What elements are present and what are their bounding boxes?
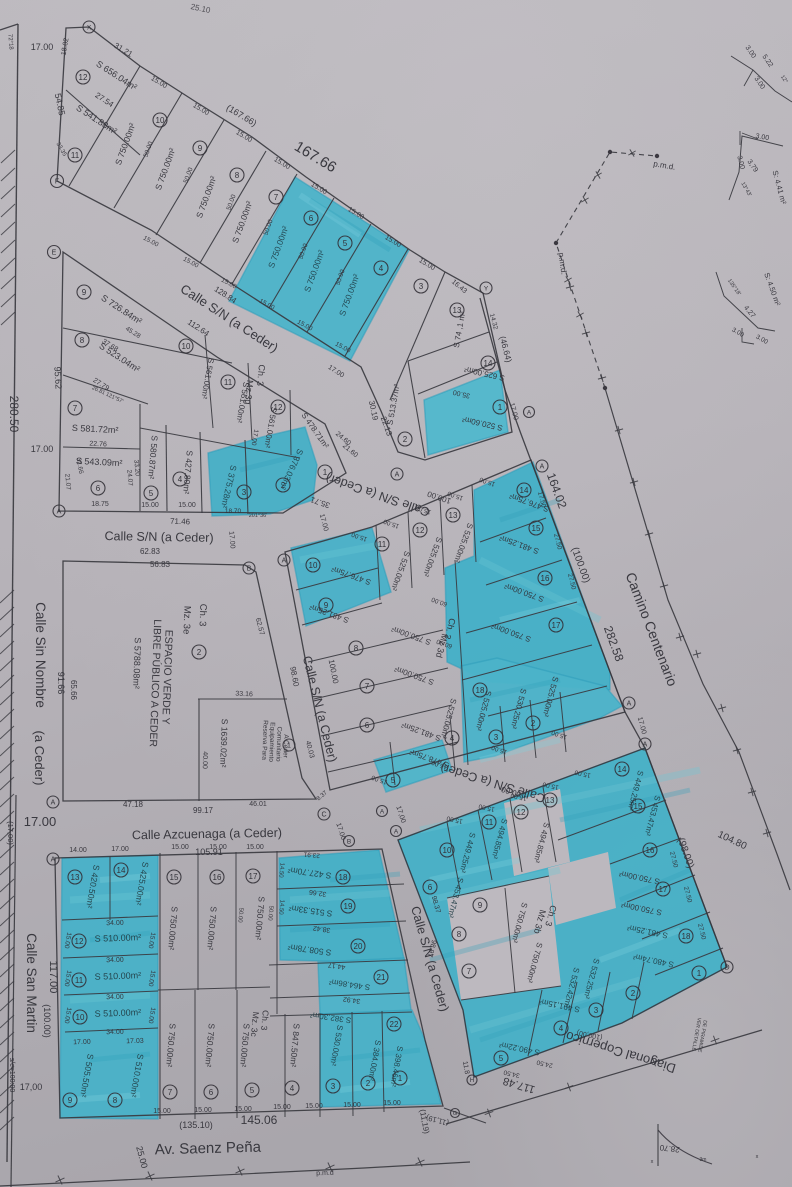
svg-text:16: 16: [213, 873, 222, 882]
svg-text:6: 6: [209, 1088, 214, 1097]
svg-text:s/c=100.00: s/c=100.00: [8, 1058, 15, 1093]
svg-text:8: 8: [80, 336, 85, 345]
svg-text:21: 21: [377, 973, 386, 982]
svg-text:16: 16: [646, 846, 655, 855]
svg-text:Calle S/N (a Ceder): Calle S/N (a Ceder): [104, 529, 213, 545]
svg-text:11: 11: [224, 378, 233, 387]
svg-text:46.01: 46.01: [249, 801, 267, 808]
svg-text:14: 14: [117, 866, 126, 875]
svg-text:5: 5: [250, 1086, 255, 1095]
svg-text:1: 1: [498, 403, 503, 412]
svg-text:10: 10: [182, 342, 191, 351]
svg-text:4: 4: [178, 475, 183, 484]
svg-text:2: 2: [197, 648, 202, 657]
svg-text:17.00: 17.00: [73, 1039, 91, 1047]
svg-text:C: C: [321, 812, 326, 819]
svg-text:12: 12: [79, 73, 88, 82]
svg-text:5: 5: [149, 489, 154, 498]
svg-text:15.00: 15.00: [383, 1100, 401, 1107]
svg-text:12: 12: [274, 403, 283, 412]
svg-text:x: x: [651, 1159, 654, 1165]
svg-text:2: 2: [631, 989, 636, 998]
svg-text:A: A: [540, 464, 545, 471]
svg-text:Y: Y: [484, 285, 489, 292]
svg-text:10: 10: [309, 561, 318, 570]
svg-text:15.00: 15.00: [343, 1102, 361, 1109]
svg-text:Calle San Martin: Calle San Martin: [24, 933, 39, 1033]
svg-text:9: 9: [82, 288, 87, 297]
svg-text:24.07: 24.07: [125, 469, 133, 486]
svg-text:17.00: 17.00: [31, 42, 54, 52]
svg-text:10: 10: [443, 846, 452, 855]
svg-text:23.91: 23.91: [303, 850, 320, 858]
svg-text:p.m.d: p.m.d: [316, 1170, 334, 1178]
svg-text:A: A: [51, 800, 56, 807]
svg-text:7: 7: [274, 193, 279, 202]
svg-text:15.00: 15.00: [178, 502, 196, 509]
svg-text:17,00: 17,00: [20, 1082, 43, 1092]
svg-text:A: A: [627, 701, 632, 708]
svg-text:62.83: 62.83: [140, 547, 161, 556]
svg-text:3: 3: [419, 282, 424, 291]
svg-text:201°36': 201°36': [249, 513, 268, 519]
svg-text:14: 14: [484, 359, 493, 368]
svg-text:7: 7: [365, 682, 370, 691]
svg-text:3: 3: [494, 733, 499, 742]
svg-text:17.00: 17.00: [24, 814, 57, 829]
svg-text:Calle Sin Nombre: Calle Sin Nombre: [33, 602, 48, 708]
svg-text:12: 12: [517, 808, 526, 817]
svg-text:40.00: 40.00: [201, 751, 209, 769]
svg-text:4: 4: [290, 1084, 295, 1093]
svg-text:34.00: 34.00: [106, 994, 124, 1002]
svg-text:34.00: 34.00: [106, 920, 124, 928]
svg-text:71.46: 71.46: [170, 517, 191, 527]
svg-text:Mz. 3e: Mz. 3e: [181, 606, 193, 635]
svg-text:65.66: 65.66: [69, 680, 78, 701]
svg-text:9: 9: [198, 144, 203, 153]
svg-text:Reserva Para: Reserva Para: [260, 720, 268, 760]
svg-text:47.18: 47.18: [123, 800, 144, 809]
svg-text:14: 14: [520, 486, 529, 495]
svg-text:13: 13: [449, 511, 458, 520]
svg-text:13: 13: [71, 873, 80, 882]
svg-text:6: 6: [309, 214, 314, 223]
svg-text:S 5788.08m²: S 5788.08m²: [131, 637, 143, 689]
svg-text:15.00: 15.00: [209, 844, 227, 851]
svg-text:Comunitario: Comunitario: [274, 726, 282, 762]
svg-text:9: 9: [478, 901, 483, 910]
svg-text:8: 8: [354, 644, 359, 653]
svg-text:(135.10): (135.10): [179, 1120, 213, 1130]
svg-text:3: 3: [594, 1006, 599, 1015]
svg-text:5: 5: [499, 1054, 504, 1063]
svg-text:Mz 3g: Mz 3g: [243, 380, 255, 405]
svg-text:18: 18: [682, 932, 691, 941]
svg-text:4: 4: [559, 1024, 564, 1033]
svg-text:6: 6: [96, 484, 101, 493]
svg-text:S 510.00m²: S 510.00m²: [94, 1007, 141, 1019]
svg-text:17: 17: [249, 872, 258, 881]
svg-text:3: 3: [242, 488, 247, 497]
svg-text:34.00: 34.00: [106, 957, 124, 965]
svg-text:15.00: 15.00: [234, 1106, 252, 1113]
svg-text:15: 15: [532, 524, 541, 533]
svg-text:(17,00): (17,00): [6, 821, 15, 845]
svg-text:8: 8: [113, 1096, 118, 1105]
svg-text:10: 10: [156, 116, 165, 125]
svg-text:15: 15: [170, 873, 179, 882]
svg-text:17: 17: [552, 621, 561, 630]
svg-text:18.70: 18.70: [225, 508, 242, 515]
svg-text:20: 20: [354, 942, 363, 951]
svg-text:S 510.00m²: S 510.00m²: [94, 932, 141, 944]
svg-text:Av. Saenz Peña: Av. Saenz Peña: [155, 1139, 262, 1159]
svg-text:18: 18: [339, 873, 348, 882]
svg-text:8: 8: [235, 171, 240, 180]
svg-text:A: A: [282, 558, 287, 565]
svg-text:14.00: 14.00: [69, 847, 87, 854]
svg-text:5: 5: [391, 776, 396, 785]
svg-text:S 510.00m²: S 510.00m²: [94, 970, 141, 982]
svg-text:56.83: 56.83: [150, 560, 171, 569]
svg-text:13: 13: [546, 796, 555, 805]
svg-text:22.76: 22.76: [89, 441, 107, 449]
svg-text:Ch. 3: Ch. 3: [255, 364, 267, 386]
svg-text:7: 7: [73, 404, 78, 413]
svg-text:1: 1: [697, 969, 702, 978]
svg-text:11: 11: [485, 818, 494, 827]
svg-text:A: A: [527, 409, 532, 416]
svg-text:11: 11: [71, 151, 80, 160]
svg-text:X: X: [87, 24, 92, 31]
svg-text:A: A: [395, 472, 400, 479]
svg-text:22: 22: [390, 1020, 399, 1029]
svg-text:280.50: 280.50: [7, 396, 21, 433]
svg-text:15.00: 15.00: [273, 1104, 291, 1111]
svg-text:15.00: 15.00: [153, 1108, 171, 1115]
svg-text:8: 8: [457, 930, 462, 939]
svg-text:7: 7: [168, 1088, 173, 1097]
svg-text:Calle Azcuenaga (a Ceder): Calle Azcuenaga (a Ceder): [132, 826, 282, 843]
svg-text:33.16: 33.16: [235, 691, 253, 699]
svg-text:A: A: [380, 808, 385, 815]
svg-text:3: 3: [331, 1082, 336, 1091]
svg-text:12: 12: [416, 526, 425, 535]
svg-text:E: E: [52, 250, 57, 257]
svg-text:S 1639.02m²: S 1639.02m²: [218, 719, 230, 768]
svg-text:16: 16: [541, 574, 550, 583]
svg-text:17.00: 17.00: [111, 846, 129, 853]
svg-text:(a Ceder): (a Ceder): [32, 731, 47, 786]
svg-text:15.00: 15.00: [246, 844, 264, 851]
svg-text:33.20: 33.20: [132, 459, 140, 476]
svg-text:91.66: 91.66: [56, 672, 66, 695]
svg-text:B: B: [347, 838, 351, 845]
svg-text:2: 2: [403, 435, 408, 444]
svg-text:12: 12: [75, 937, 84, 946]
svg-text:2: 2: [531, 719, 536, 728]
svg-text:2: 2: [281, 481, 286, 490]
svg-text:15.00: 15.00: [141, 502, 159, 509]
svg-text:17: 17: [659, 885, 668, 894]
svg-text:4: 4: [450, 734, 455, 743]
svg-text:6: 6: [428, 883, 433, 892]
svg-text:1: 1: [287, 743, 291, 750]
svg-text:Ch. 3: Ch. 3: [197, 604, 209, 627]
svg-text:Equipamiento: Equipamiento: [267, 722, 275, 762]
svg-text:17.03: 17.03: [126, 1038, 144, 1046]
svg-text:15.00: 15.00: [194, 1107, 212, 1114]
svg-text:3m: 3m: [700, 1157, 707, 1163]
svg-text:9: 9: [68, 1096, 73, 1105]
svg-text:6: 6: [365, 721, 370, 730]
svg-text:19: 19: [344, 902, 353, 911]
svg-text:A: A: [394, 828, 399, 835]
svg-text:G: G: [453, 1111, 457, 1117]
svg-text:5: 5: [343, 239, 348, 248]
svg-text:145.06: 145.06: [241, 1113, 278, 1127]
svg-text:14: 14: [618, 765, 627, 774]
svg-text:11: 11: [378, 540, 387, 549]
svg-text:15.00: 15.00: [305, 1103, 323, 1110]
svg-text:21.07: 21.07: [63, 473, 71, 490]
svg-text:10: 10: [76, 1013, 85, 1022]
svg-text:11: 11: [75, 976, 84, 985]
svg-text:(100.00): (100.00): [42, 1004, 52, 1038]
svg-text:4: 4: [379, 264, 384, 273]
svg-text:H: H: [470, 1078, 474, 1084]
svg-text:x: x: [756, 1154, 759, 1160]
svg-text:18.75: 18.75: [91, 501, 109, 508]
svg-text:99.17: 99.17: [193, 806, 214, 815]
svg-text:7: 7: [467, 967, 472, 976]
svg-text:34.00: 34.00: [106, 1029, 124, 1037]
svg-text:17.00: 17.00: [31, 444, 54, 454]
svg-text:95.62: 95.62: [52, 366, 63, 389]
svg-text:15.00: 15.00: [171, 844, 189, 851]
